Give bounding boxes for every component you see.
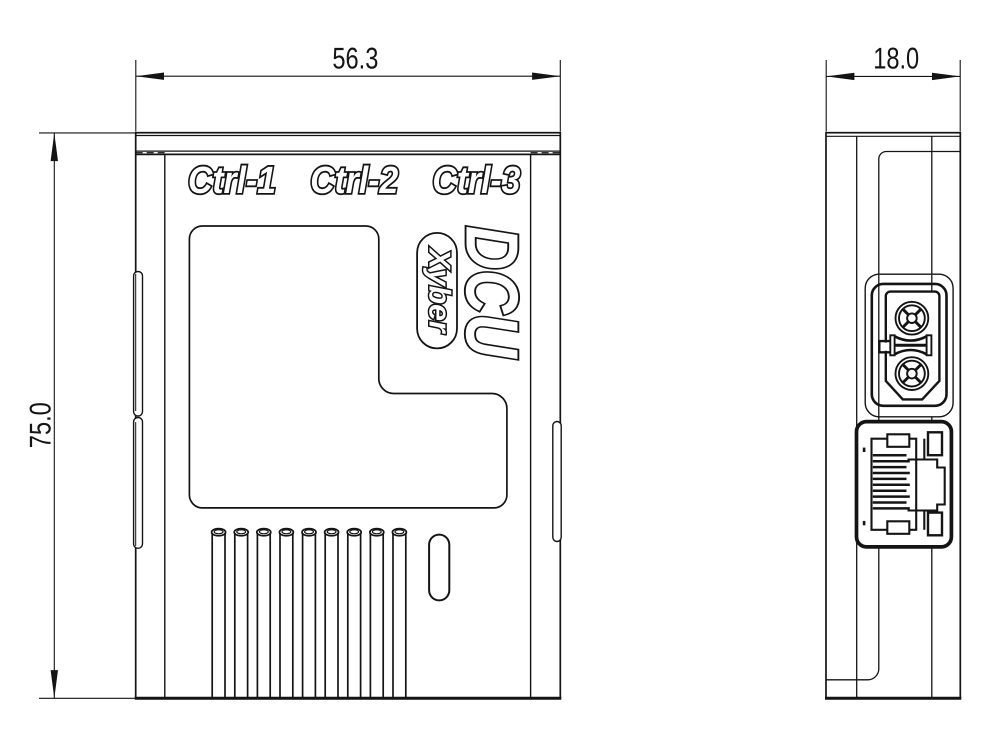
svg-text:DCU: DCU	[450, 226, 533, 359]
svg-text:Ctrl-3: Ctrl-3	[432, 160, 520, 202]
svg-text:Ctrl-1: Ctrl-1	[188, 160, 276, 202]
svg-text:Xyber: Xyber	[423, 247, 456, 335]
svg-text:56.3: 56.3	[332, 43, 378, 76]
svg-text:75.0: 75.0	[24, 402, 57, 448]
svg-text:Ctrl-2: Ctrl-2	[310, 160, 398, 202]
svg-text:18.0: 18.0	[873, 43, 919, 76]
